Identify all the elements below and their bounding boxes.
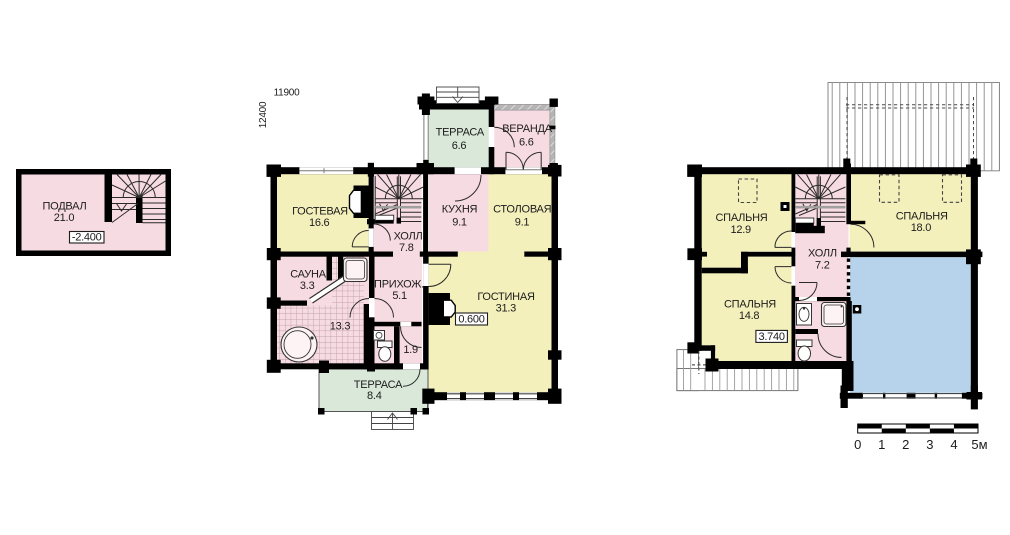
svg-text:7.8: 7.8 — [399, 242, 414, 254]
svg-text:ПОДВАЛ: ПОДВАЛ — [43, 201, 87, 213]
svg-text:ТЕРРАСА: ТЕРРАСА — [436, 127, 485, 139]
svg-text:5.1: 5.1 — [392, 290, 407, 302]
svg-text:СТОЛОВАЯ: СТОЛОВАЯ — [493, 204, 552, 216]
svg-text:ХОЛЛ: ХОЛЛ — [808, 247, 837, 259]
svg-text:6.6: 6.6 — [452, 140, 467, 152]
svg-text:0: 0 — [854, 437, 861, 452]
svg-text:ТЕРРАСА: ТЕРРАСА — [354, 379, 403, 391]
svg-text:4: 4 — [950, 437, 957, 452]
svg-text:САУНА: САУНА — [290, 268, 326, 280]
svg-text:ВЕРАНДА: ВЕРАНДА — [502, 123, 553, 135]
svg-text:31.3: 31.3 — [496, 303, 517, 315]
svg-text:СПАЛЬНЯ: СПАЛЬНЯ — [896, 210, 948, 222]
svg-text:ГОСТИНАЯ: ГОСТИНАЯ — [477, 291, 535, 303]
svg-text:8.4: 8.4 — [367, 390, 382, 402]
svg-text:11900: 11900 — [274, 88, 301, 99]
svg-text:13.3: 13.3 — [330, 320, 351, 332]
svg-text:3.3: 3.3 — [300, 280, 315, 292]
svg-text:12.9: 12.9 — [730, 224, 751, 236]
svg-text:СПАЛЬНЯ: СПАЛЬНЯ — [715, 212, 767, 224]
svg-text:7.2: 7.2 — [815, 259, 830, 271]
svg-text:ПРИХОЖ.: ПРИХОЖ. — [374, 278, 424, 290]
svg-text:21.0: 21.0 — [54, 212, 75, 224]
svg-text:1: 1 — [878, 437, 885, 452]
svg-text:16.6: 16.6 — [309, 217, 330, 229]
svg-text:ХОЛЛ: ХОЛЛ — [394, 231, 423, 243]
svg-text:ГОСТЕВАЯ: ГОСТЕВАЯ — [292, 205, 348, 217]
svg-text:14.8: 14.8 — [739, 310, 760, 322]
svg-text:18.0: 18.0 — [911, 222, 932, 234]
svg-text:9.1: 9.1 — [452, 217, 467, 229]
svg-text:9.1: 9.1 — [515, 217, 530, 229]
svg-text:-2.400: -2.400 — [72, 232, 102, 244]
svg-text:СПАЛЬНЯ: СПАЛЬНЯ — [724, 298, 776, 310]
svg-text:1.9: 1.9 — [403, 344, 418, 356]
svg-text:6.6: 6.6 — [519, 137, 534, 149]
svg-text:12400: 12400 — [258, 101, 269, 128]
svg-text:3: 3 — [926, 437, 933, 452]
svg-text:3.740: 3.740 — [758, 331, 784, 343]
svg-text:0.600: 0.600 — [458, 314, 484, 326]
svg-text:2: 2 — [902, 437, 909, 452]
svg-text:5м: 5м — [971, 437, 987, 452]
svg-text:КУХНЯ: КУХНЯ — [442, 204, 478, 216]
